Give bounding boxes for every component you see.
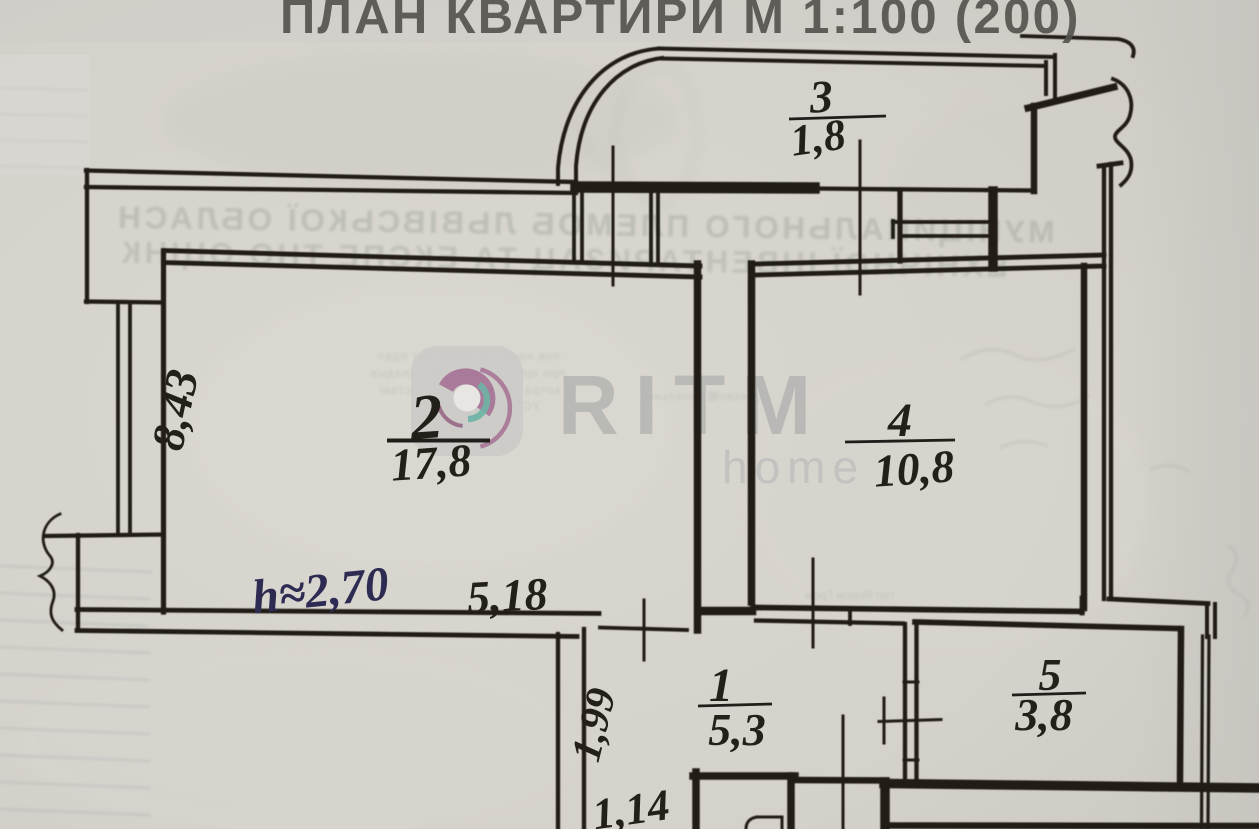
svg-text:ПЛАН КВАРТИРИ М 1:100 (200): ПЛАН КВАРТИРИ М 1:100 (200): [280, 0, 1081, 44]
svg-text:5,3: 5,3: [708, 704, 766, 755]
svg-text:4: 4: [887, 394, 912, 447]
svg-text:1,8: 1,8: [787, 110, 848, 166]
svg-text:3,8: 3,8: [1014, 689, 1073, 740]
svg-text:home: home: [722, 441, 865, 493]
svg-text:10,8: 10,8: [872, 440, 956, 496]
svg-text:5,18: 5,18: [466, 568, 549, 623]
svg-text:тил Вером Гром: тил Вером Гром: [805, 588, 895, 602]
svg-text:RITM: RITM: [558, 358, 827, 452]
svg-text:17,8: 17,8: [389, 434, 473, 490]
